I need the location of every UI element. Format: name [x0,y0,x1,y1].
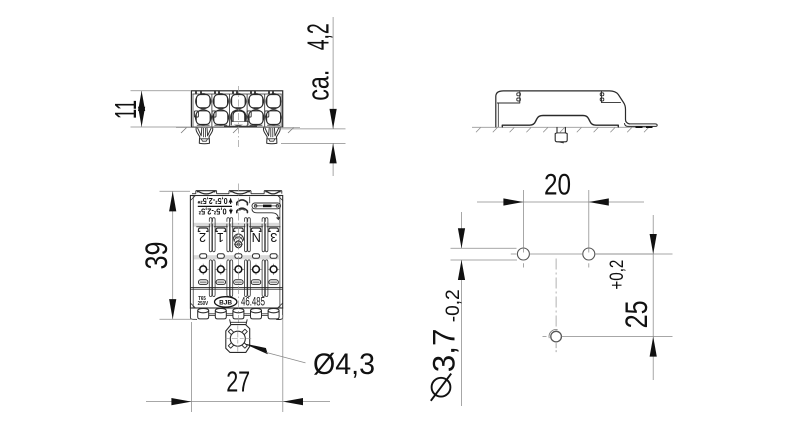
svg-text:2: 2 [199,230,206,245]
svg-text:-0,2: -0,2 [442,289,464,322]
svg-text:3,7: 3,7 [425,329,461,373]
svg-text:Ø4,3: Ø4,3 [313,348,375,381]
svg-text:3: 3 [270,230,277,245]
svg-text:1: 1 [217,230,224,245]
svg-text:ca.: ca. [300,70,335,101]
svg-text:0,5²-2,5²: 0,5²-2,5² [198,206,226,216]
svg-text:+0,2: +0,2 [607,260,628,290]
svg-text:25: 25 [618,300,654,328]
svg-text:0,5²-2,5²*: 0,5²-2,5²* [197,196,228,206]
svg-text:N: N [252,230,261,245]
svg-text:11: 11 [108,100,143,119]
svg-text:BJB: BJB [219,299,232,306]
svg-text:250V: 250V [198,301,209,307]
svg-text:46.485: 46.485 [241,296,265,308]
svg-text:39: 39 [138,242,174,270]
svg-text:20: 20 [544,169,571,202]
svg-text:27: 27 [226,367,250,399]
svg-text:4,2: 4,2 [300,23,335,50]
